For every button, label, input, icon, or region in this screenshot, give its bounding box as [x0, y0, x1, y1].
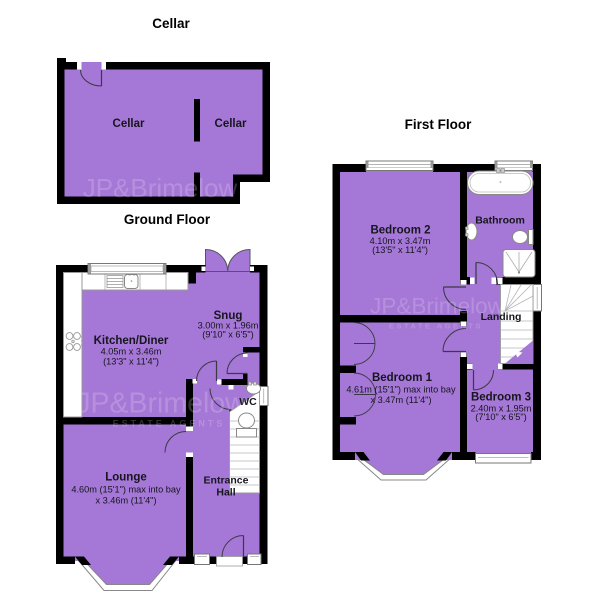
svg-text:Cellar: Cellar [215, 118, 247, 130]
svg-text:Lounge: Lounge [105, 472, 147, 484]
svg-text:Bedroom 1: Bedroom 1 [372, 372, 433, 384]
svg-text:x 3.47m (11'4"): x 3.47m (11'4") [370, 395, 431, 405]
svg-text:JP&Brimelow: JP&Brimelow [76, 388, 246, 420]
svg-text:(7'10" x 6'5"): (7'10" x 6'5") [475, 412, 526, 422]
svg-text:Entrance: Entrance [204, 475, 249, 487]
svg-text:Bathroom: Bathroom [475, 215, 525, 227]
svg-text:ESTATE AGENTS: ESTATE AGENTS [113, 419, 226, 429]
svg-text:First Floor: First Floor [405, 117, 472, 132]
svg-text:(13'5" x 11'4"): (13'5" x 11'4") [372, 245, 428, 255]
svg-text:Bedroom 2: Bedroom 2 [370, 225, 430, 237]
svg-text:Cellar: Cellar [113, 118, 145, 130]
svg-text:4.60m (15'1") max into bay: 4.60m (15'1") max into bay [71, 485, 181, 495]
svg-text:4.05m x 3.46m: 4.05m x 3.46m [101, 347, 162, 357]
svg-text:Cellar: Cellar [152, 16, 190, 31]
svg-text:ESTATE AGENTS: ESTATE AGENTS [389, 322, 483, 331]
svg-text:Bedroom 3: Bedroom 3 [471, 392, 531, 404]
svg-text:Ground Floor: Ground Floor [124, 212, 211, 227]
svg-text:JP&Brimelow: JP&Brimelow [83, 173, 238, 203]
svg-text:x 3.46m (11'4"): x 3.46m (11'4") [95, 496, 156, 506]
svg-text:(13'3" x 11'4"): (13'3" x 11'4") [103, 357, 159, 367]
svg-text:Hall: Hall [216, 487, 235, 499]
svg-text:Kitchen/Diner: Kitchen/Diner [94, 335, 169, 347]
svg-text:JP&Brimelow: JP&Brimelow [370, 294, 505, 319]
svg-text:4.61m (15'1") max into bay: 4.61m (15'1") max into bay [346, 385, 456, 395]
svg-text:(9'10" x 6'5"): (9'10" x 6'5") [202, 330, 253, 340]
